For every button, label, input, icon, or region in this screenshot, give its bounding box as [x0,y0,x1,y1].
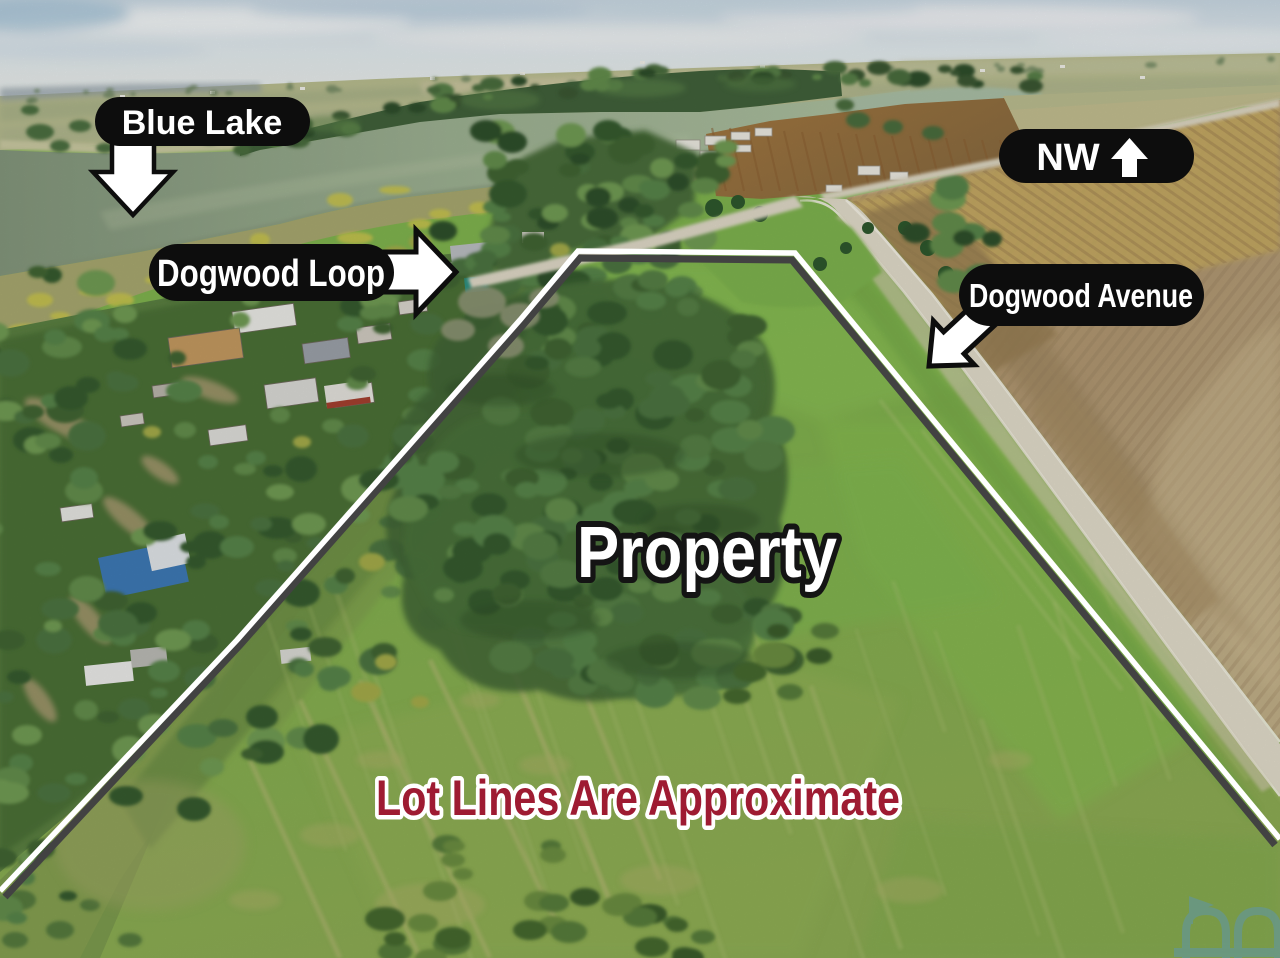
svg-text:Dogwood Loop: Dogwood Loop [157,253,385,295]
svg-text:Blue Lake: Blue Lake [122,104,283,142]
svg-text:Property: Property [577,513,837,593]
svg-text:Lot Lines Are Approximate: Lot Lines Are Approximate [376,770,900,826]
svg-text:Dogwood Avenue: Dogwood Avenue [969,277,1193,314]
svg-text:NW: NW [1036,137,1099,179]
